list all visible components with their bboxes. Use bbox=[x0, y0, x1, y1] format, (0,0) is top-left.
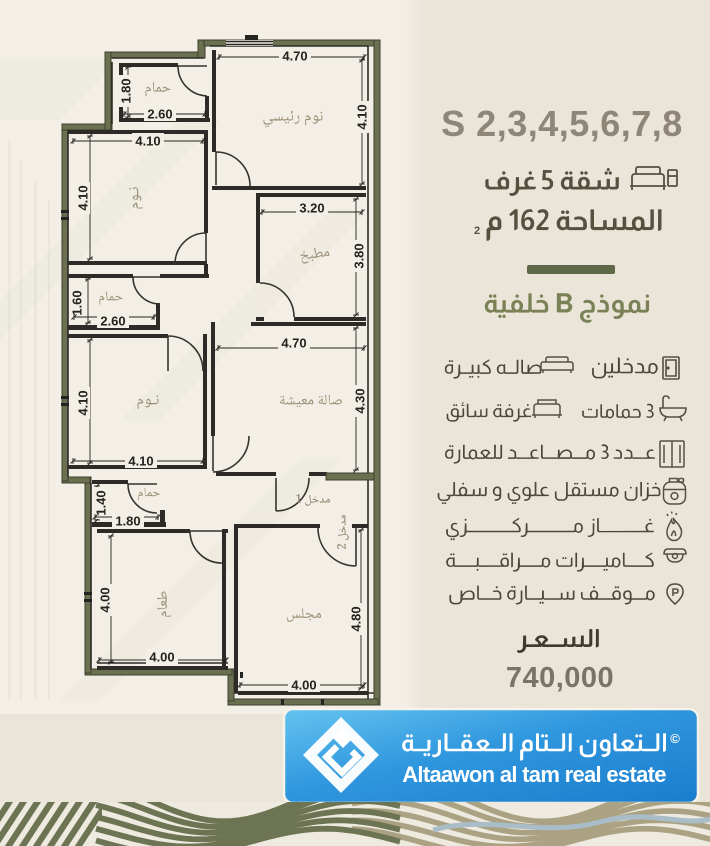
svg-text:4.30: 4.30 bbox=[353, 388, 368, 413]
svg-text:3.80: 3.80 bbox=[352, 243, 367, 268]
svg-text:4.10: 4.10 bbox=[76, 185, 91, 210]
svg-text:1.80: 1.80 bbox=[119, 78, 134, 103]
svg-text:1.80: 1.80 bbox=[115, 514, 140, 529]
svg-text:4.10: 4.10 bbox=[128, 454, 153, 469]
svg-text:2.60: 2.60 bbox=[147, 107, 172, 122]
svg-text:2: 2 bbox=[474, 225, 480, 237]
svg-text:4.10: 4.10 bbox=[76, 390, 91, 415]
svg-text:S 2,3,4,5,6,7,8: S 2,3,4,5,6,7,8 bbox=[441, 103, 683, 144]
svg-text:4.10: 4.10 bbox=[135, 134, 160, 149]
svg-text:4.00: 4.00 bbox=[149, 650, 174, 665]
svg-text:4.80: 4.80 bbox=[349, 606, 364, 631]
svg-text:1.40: 1.40 bbox=[94, 490, 109, 515]
svg-text:4.70: 4.70 bbox=[282, 49, 307, 64]
svg-text:©: © bbox=[670, 731, 680, 746]
svg-text:1.60: 1.60 bbox=[70, 290, 85, 315]
svg-text:2.60: 2.60 bbox=[100, 314, 125, 329]
svg-text:4.70: 4.70 bbox=[281, 336, 306, 351]
svg-text:4.00: 4.00 bbox=[291, 678, 316, 693]
svg-text:4.10: 4.10 bbox=[355, 104, 370, 129]
svg-text:3.20: 3.20 bbox=[299, 201, 324, 216]
svg-text:4.00: 4.00 bbox=[98, 587, 113, 612]
svg-text:Altaawon al tam real estate: Altaawon al tam real estate bbox=[402, 762, 666, 787]
svg-text:740,000: 740,000 bbox=[506, 662, 614, 694]
